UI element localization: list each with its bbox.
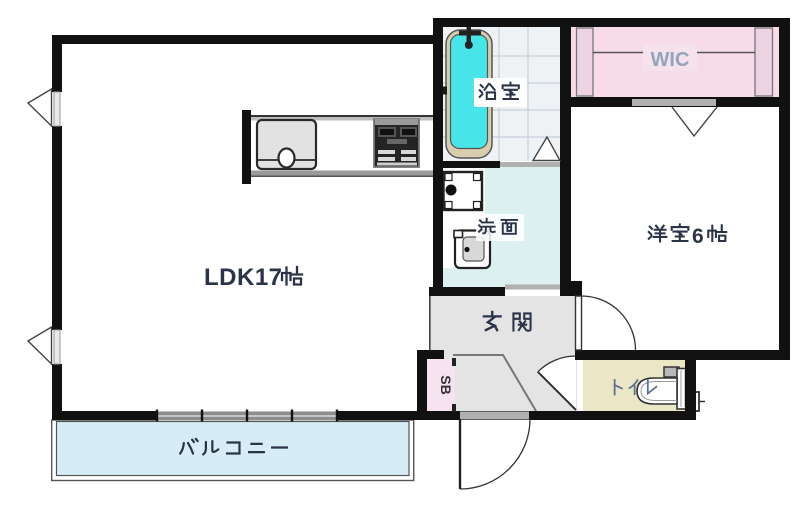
svg-text:SB: SB bbox=[438, 375, 454, 394]
svg-text:WIC: WIC bbox=[651, 49, 690, 71]
svg-text:6: 6 bbox=[692, 225, 704, 248]
svg-text:LDK17: LDK17 bbox=[204, 264, 283, 291]
